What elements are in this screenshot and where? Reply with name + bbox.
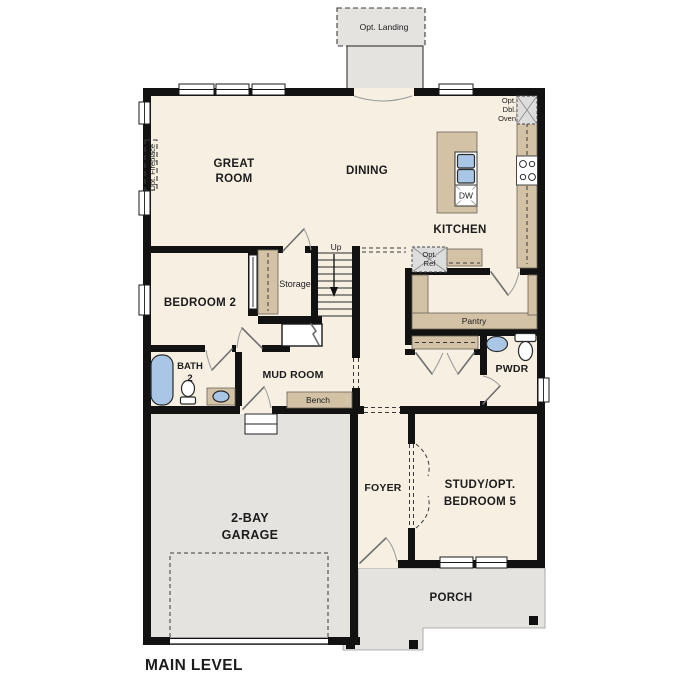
opt-fireplace-label: Opt. Fireplace bbox=[148, 144, 157, 191]
floorplan-page: Opt. Landing bbox=[0, 0, 687, 687]
dishwasher: DW bbox=[455, 185, 477, 206]
cooktop bbox=[517, 156, 538, 185]
window bbox=[179, 84, 214, 95]
great-room-label: GREAT bbox=[214, 158, 255, 170]
hall-closet bbox=[412, 336, 478, 349]
window bbox=[216, 84, 249, 95]
garage-entry-steps bbox=[245, 414, 277, 434]
garage-floor bbox=[151, 414, 350, 637]
stairs-up-label: Up bbox=[331, 242, 342, 252]
vanity-sink bbox=[207, 388, 235, 405]
opt-refrigerator: Opt. Ref bbox=[412, 247, 447, 272]
window bbox=[439, 84, 473, 95]
plan-title: MAIN LEVEL bbox=[145, 657, 243, 674]
svg-text:GARAGE: GARAGE bbox=[222, 528, 279, 542]
window bbox=[139, 285, 150, 315]
svg-text:Ref: Ref bbox=[424, 259, 437, 268]
svg-text:2: 2 bbox=[187, 373, 192, 384]
kitchen-label: KITCHEN bbox=[433, 224, 486, 236]
porch-label: PORCH bbox=[429, 592, 472, 604]
mudroom-bench: Bench bbox=[287, 392, 352, 408]
garage-label: 2-BAY bbox=[231, 511, 269, 525]
foyer-label: FOYER bbox=[364, 482, 401, 494]
svg-text:BEDROOM 5: BEDROOM 5 bbox=[444, 496, 517, 508]
island-sink bbox=[455, 152, 477, 185]
mud-room-label: MUD ROOM bbox=[262, 369, 323, 381]
powder-label: PWDR bbox=[496, 363, 529, 375]
dining-label: DINING bbox=[346, 165, 388, 177]
pedestal-sink bbox=[487, 337, 508, 352]
opt-dbl-oven-label: Opt. bbox=[502, 96, 516, 105]
pantry-label: Pantry bbox=[462, 316, 487, 326]
opt-landing-label: Opt. Landing bbox=[360, 22, 409, 32]
svg-text:Oven: Oven bbox=[498, 114, 516, 123]
window bbox=[139, 102, 150, 124]
storage-label: Storage bbox=[279, 279, 311, 289]
bathtub bbox=[151, 355, 173, 405]
toilet bbox=[181, 381, 196, 405]
window bbox=[476, 557, 507, 568]
svg-text:ROOM: ROOM bbox=[216, 173, 253, 185]
understair-closet bbox=[282, 324, 322, 346]
svg-text:Dbl.: Dbl. bbox=[503, 105, 516, 114]
window bbox=[538, 378, 549, 402]
window bbox=[139, 191, 150, 215]
bench-label: Bench bbox=[306, 395, 330, 405]
bedroom2-closet bbox=[249, 250, 278, 314]
bath2-label: BATH bbox=[177, 361, 203, 372]
window bbox=[252, 84, 285, 95]
garage-door-opening-line bbox=[170, 638, 328, 639]
dishwasher-label: DW bbox=[459, 191, 473, 201]
study-label: STUDY/OPT. bbox=[445, 479, 516, 491]
bedroom2-label: BEDROOM 2 bbox=[164, 297, 236, 309]
window bbox=[440, 557, 473, 568]
floorplan-drawing: Opt. Landing bbox=[0, 0, 687, 687]
rear-stoop bbox=[347, 46, 423, 90]
opt-ref-label: Opt. bbox=[422, 250, 436, 259]
opt-double-oven: Opt. Dbl. Oven bbox=[498, 96, 537, 124]
